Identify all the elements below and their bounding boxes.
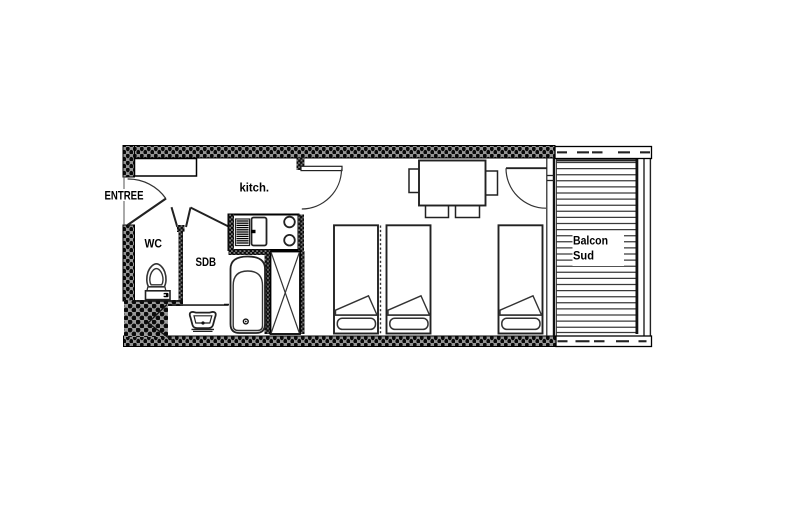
svg-text:SDB: SDB: [196, 255, 217, 269]
svg-text:Balcon: Balcon: [573, 234, 608, 248]
svg-text:kitch.: kitch.: [240, 181, 270, 195]
svg-text:Sud: Sud: [573, 248, 594, 262]
svg-text:WC: WC: [145, 237, 163, 251]
svg-text:ENTREE: ENTREE: [105, 188, 144, 202]
